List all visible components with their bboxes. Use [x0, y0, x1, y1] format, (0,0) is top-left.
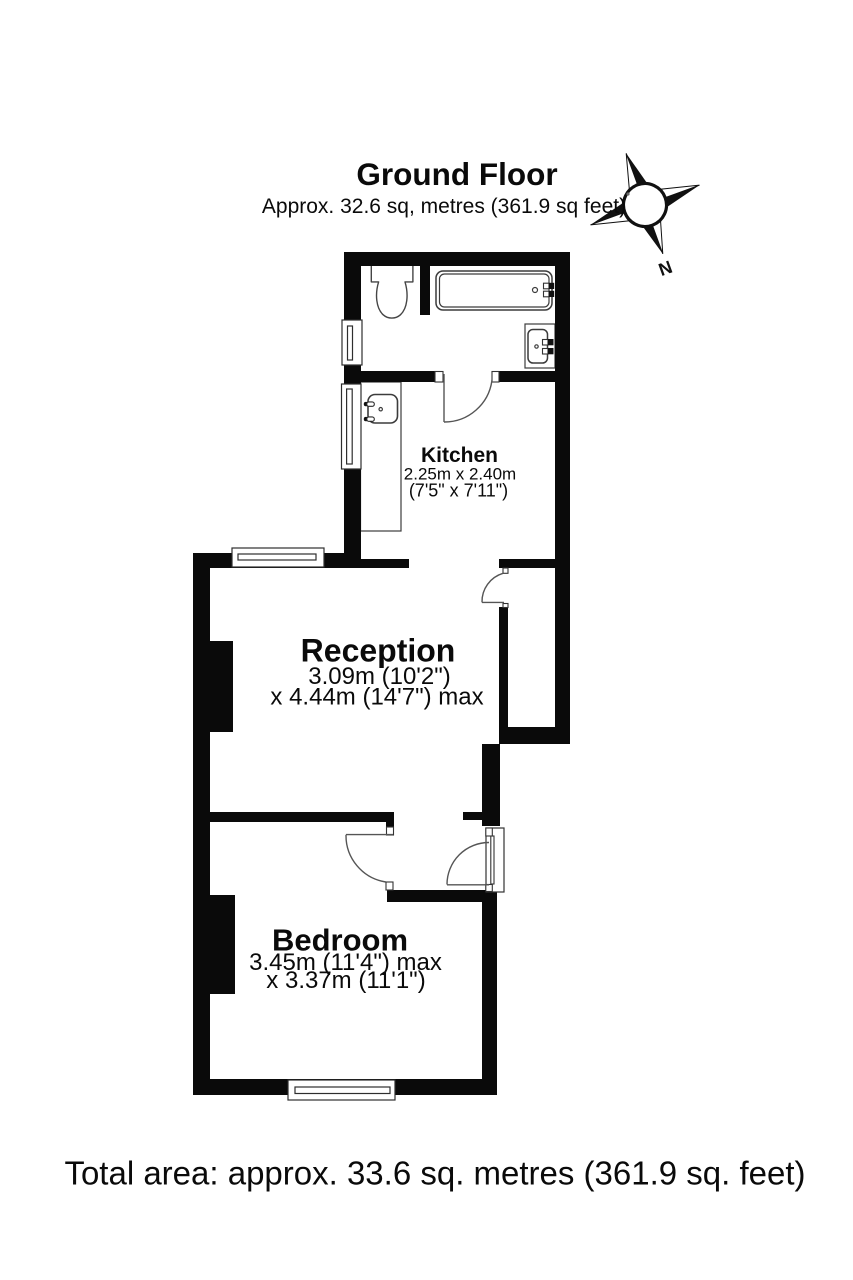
svg-text:x 3.37m (11'1"): x 3.37m (11'1") [266, 967, 425, 994]
svg-text:Approx. 32.6 sq, metres (361.9: Approx. 32.6 sq, metres (361.9 sq feet) [262, 195, 626, 218]
svg-text:Ground Floor: Ground Floor [356, 156, 557, 192]
svg-text:(7'5" x 7'11"): (7'5" x 7'11") [409, 481, 508, 501]
svg-text:Total area: approx. 33.6 sq. m: Total area: approx. 33.6 sq. metres (361… [64, 1155, 805, 1192]
svg-text:x 4.44m (14'7") max: x 4.44m (14'7") max [270, 684, 483, 711]
